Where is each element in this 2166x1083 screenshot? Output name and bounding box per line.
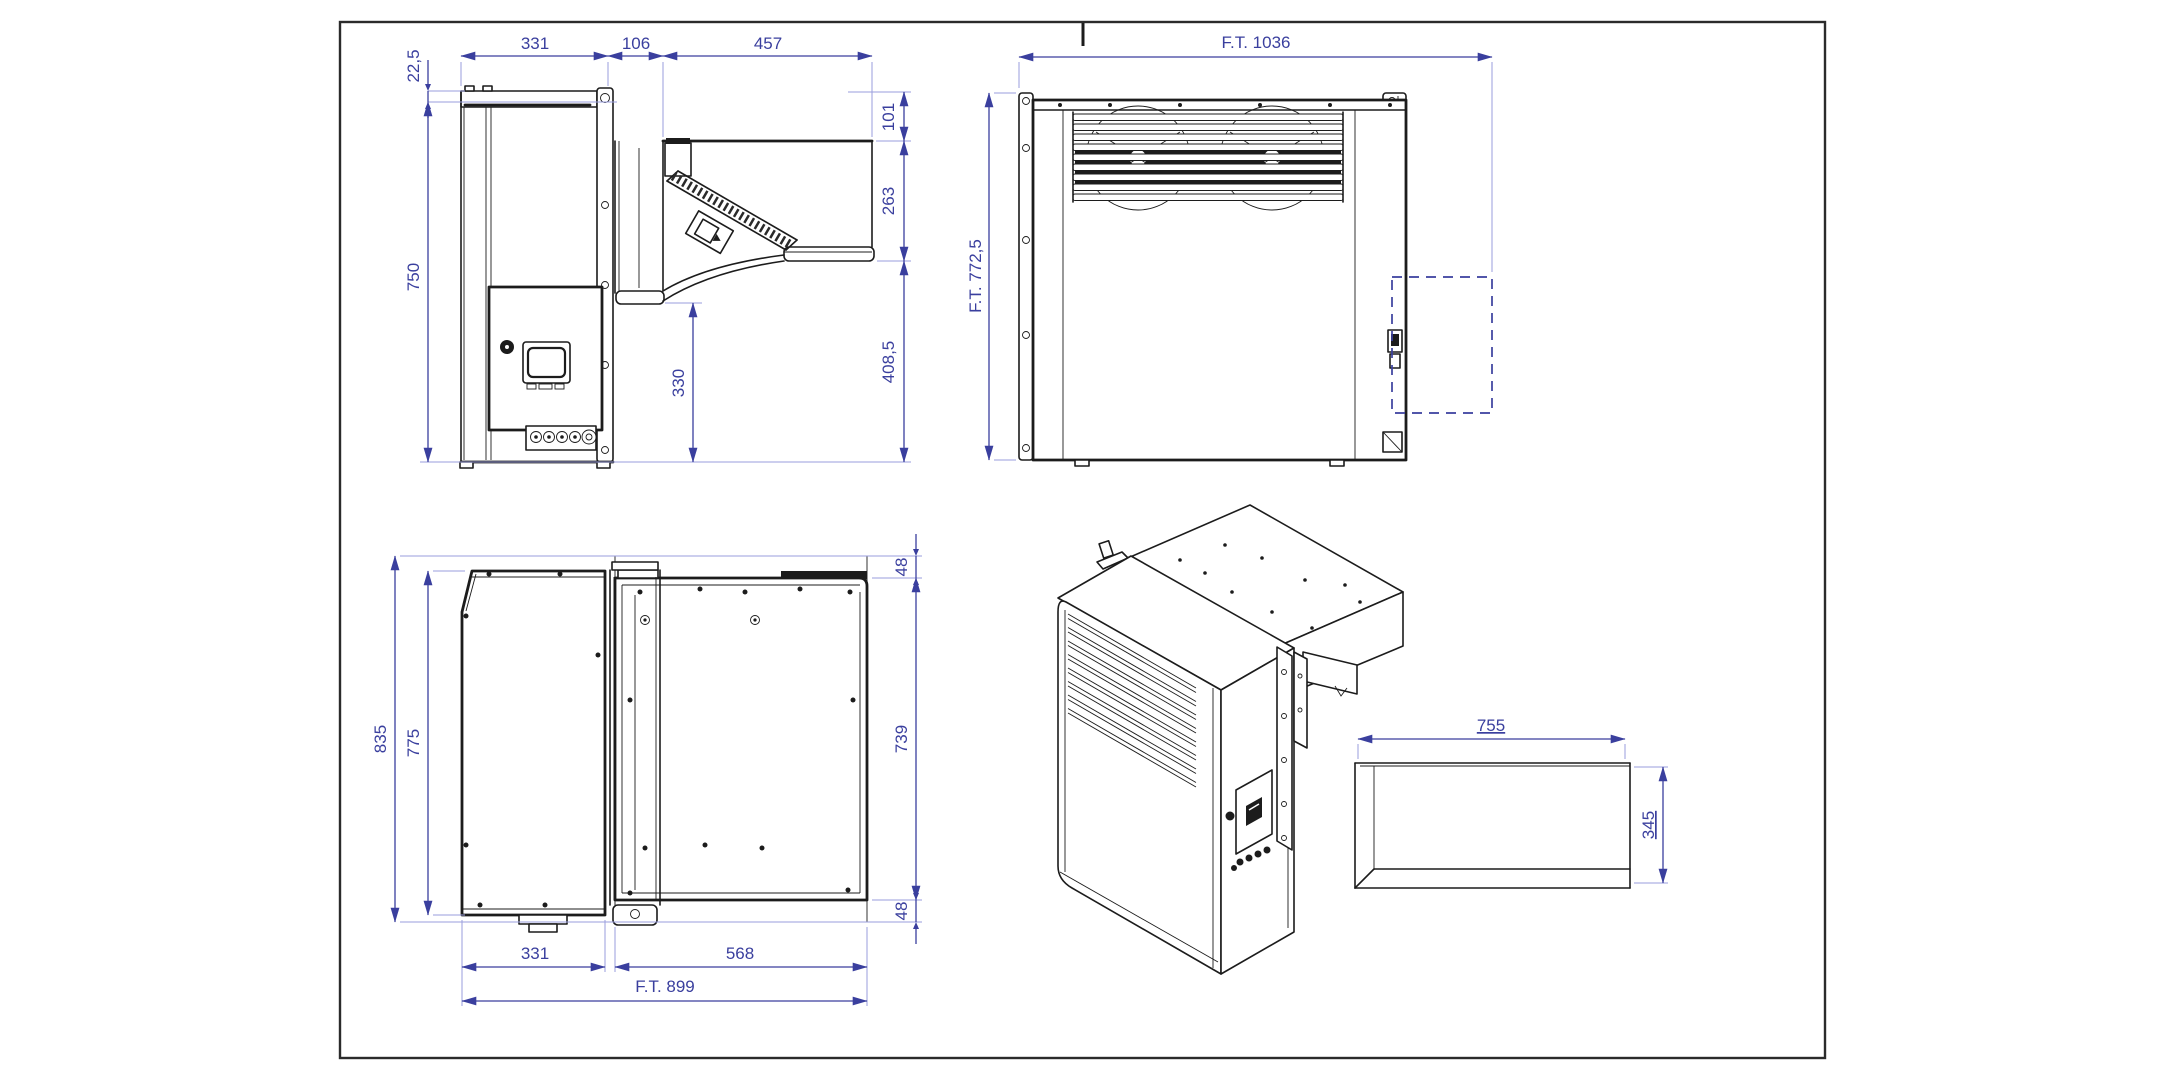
coil-band xyxy=(667,171,797,250)
dim-label-48-top: 48 xyxy=(892,558,911,577)
plan-view-geometry xyxy=(462,556,867,932)
iso-view: 755 345 xyxy=(1058,505,1668,974)
iso-unit xyxy=(1058,505,1403,974)
dim-label-408-5: 408,5 xyxy=(879,341,898,384)
wall-duct-section xyxy=(615,141,664,304)
dim-label-739: 739 xyxy=(892,725,911,753)
dim-label-331-side: 331 xyxy=(521,34,549,53)
drain-fitting xyxy=(519,915,567,924)
dim-label-345: 345 xyxy=(1639,811,1658,839)
technical-drawing-canvas: 331 106 457 22,5 750 101 263 408,5 330 xyxy=(0,0,2166,1083)
dim-label-48-bottom: 48 xyxy=(892,902,911,921)
dim-label-101: 101 xyxy=(879,103,898,131)
dim-label-263: 263 xyxy=(879,187,898,215)
dim-label-750: 750 xyxy=(404,263,423,291)
wall-opening-dimensions: 755 345 xyxy=(1358,716,1668,883)
drip-tray xyxy=(784,247,874,261)
wall-opening: 755 345 xyxy=(1355,716,1668,888)
front-view: F.T. 1036 F.T. 772,5 xyxy=(966,33,1492,466)
plan-indoor-section xyxy=(462,571,605,932)
dim-label-331-plan: 331 xyxy=(521,944,549,963)
control-box xyxy=(489,287,602,430)
plan-view: 835 775 48 739 48 331 568 xyxy=(371,534,922,1006)
front-view-geometry xyxy=(1019,93,1492,466)
dim-label-22-5: 22,5 xyxy=(404,49,423,82)
condensing-section xyxy=(663,138,874,301)
dim-label-568: 568 xyxy=(726,944,754,963)
drain-pump xyxy=(686,211,734,254)
cable-glands xyxy=(526,426,596,450)
dim-label-775: 775 xyxy=(404,729,423,757)
dim-label-ft-1036: F.T. 1036 xyxy=(1222,33,1291,52)
dim-label-835: 835 xyxy=(371,725,390,753)
dim-label-ft-899: F.T. 899 xyxy=(635,977,695,996)
dim-label-457: 457 xyxy=(754,34,782,53)
side-view-geometry xyxy=(460,86,874,468)
dim-label-ft-772-5: F.T. 772,5 xyxy=(966,239,985,313)
side-view: 331 106 457 22,5 750 101 263 408,5 330 xyxy=(404,34,911,468)
dim-label-330: 330 xyxy=(669,369,688,397)
dim-label-755: 755 xyxy=(1477,716,1505,735)
plan-outdoor-section xyxy=(615,556,867,922)
iso-wall-bracket xyxy=(1277,647,1292,850)
dim-label-106: 106 xyxy=(622,34,650,53)
